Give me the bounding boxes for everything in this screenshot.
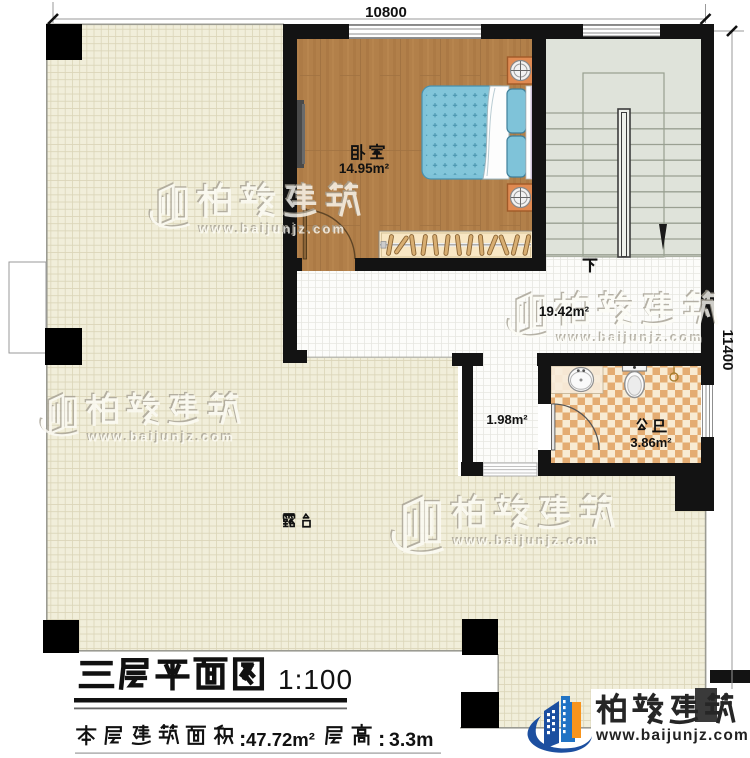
svg-text:14.95m²: 14.95m² (339, 161, 390, 176)
svg-text:10800: 10800 (365, 4, 407, 21)
svg-text:47.72m²: 47.72m² (246, 729, 315, 750)
svg-text:www.baijunjz.com: www.baijunjz.com (198, 222, 346, 237)
svg-text:11400: 11400 (719, 330, 736, 371)
svg-text:www.baijunjz.com: www.baijunjz.com (556, 331, 704, 346)
svg-text:1:100: 1:100 (278, 664, 353, 695)
svg-text:www.baijunjz.com: www.baijunjz.com (595, 727, 749, 744)
svg-text:www.baijunjz.com: www.baijunjz.com (87, 430, 235, 445)
svg-text::: : (378, 726, 385, 751)
svg-text:19.42m²: 19.42m² (539, 304, 590, 319)
svg-text:3.86m²: 3.86m² (630, 435, 672, 450)
svg-text:www.baijunjz.com: www.baijunjz.com (452, 534, 600, 549)
svg-text:3.3m: 3.3m (389, 729, 433, 751)
svg-text:1.98m²: 1.98m² (486, 412, 528, 427)
